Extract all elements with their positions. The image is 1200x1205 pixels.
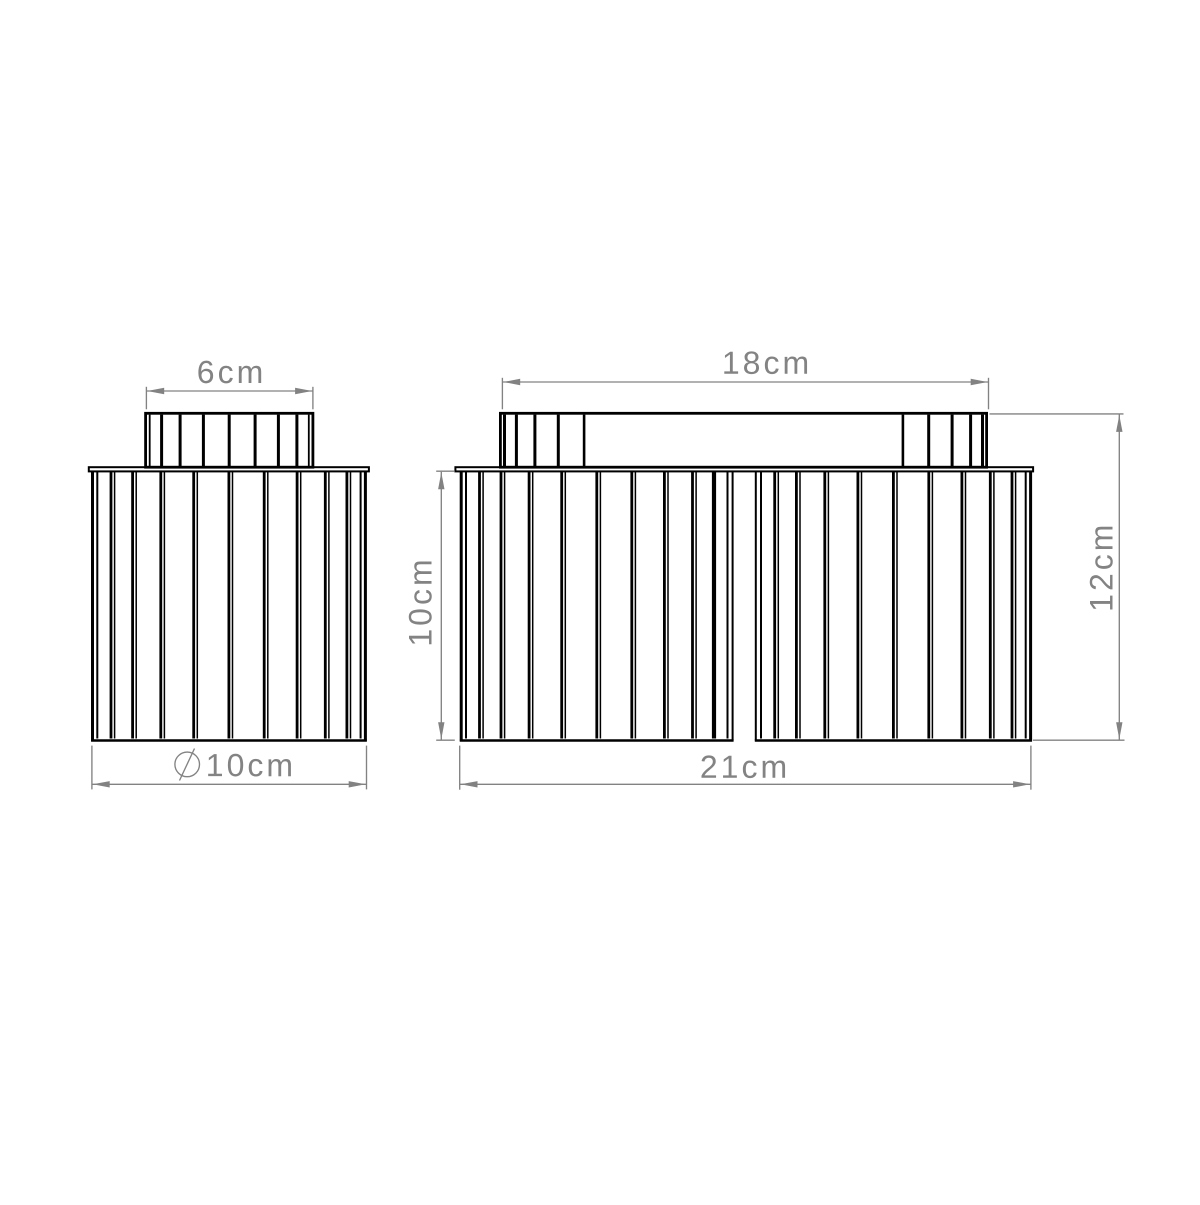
svg-text:21cm: 21cm (700, 749, 790, 785)
svg-text:18cm: 18cm (722, 345, 812, 381)
svg-text:10cm: 10cm (403, 556, 439, 646)
svg-text:6cm: 6cm (197, 354, 266, 390)
svg-text:12cm: 12cm (1084, 522, 1120, 612)
svg-text:10cm: 10cm (206, 747, 296, 783)
